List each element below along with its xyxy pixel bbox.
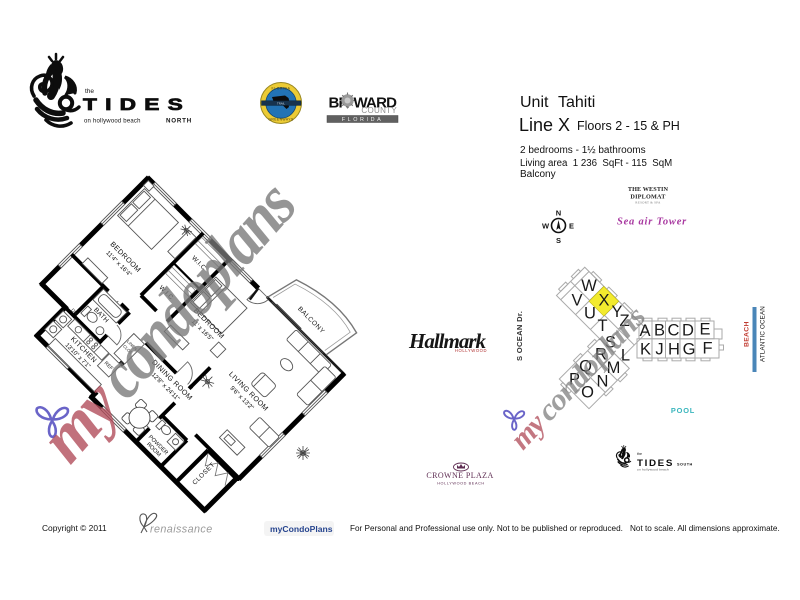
svg-text:S OCEAN Dr.: S OCEAN Dr. [515,311,524,361]
svg-text:NORTH: NORTH [166,118,192,125]
svg-text:DIPLOMAT: DIPLOMAT [630,194,666,201]
svg-text:FLORIDA: FLORIDA [272,87,291,91]
svg-text:the: the [85,88,94,95]
svg-text:POOL: POOL [671,406,695,415]
svg-text:on hollywood beach: on hollywood beach [84,119,141,125]
svg-text:Tahiti: Tahiti [558,94,595,111]
svg-text:B: B [654,322,665,340]
svg-text:GREENWAYS: GREENWAYS [268,118,294,122]
svg-text:For Personal and Professional: For Personal and Professional use only. … [350,524,623,533]
svg-text:the: the [637,452,642,456]
svg-text:E: E [569,222,574,231]
svg-text:Unit: Unit [520,94,549,111]
svg-text:X: X [598,292,609,310]
svg-text:U: U [584,305,596,323]
svg-text:SOUTH: SOUTH [677,463,693,467]
svg-text:Balcony: Balcony [520,169,556,180]
svg-text:J: J [655,341,663,359]
svg-text:COUNTY: COUNTY [361,106,397,115]
svg-text:Line X: Line X [519,115,570,135]
svg-text:H: H [668,341,680,359]
svg-text:Living area 1 236 SqFt - 115: Living area 1 236 SqFt - 115 SqM [520,158,672,169]
svg-text:N: N [556,209,561,218]
svg-text:Sea air Tower: Sea air Tower [617,217,687,228]
svg-text:myCondoPlans: myCondoPlans [270,524,333,534]
svg-text:S: S [556,236,561,245]
svg-text:2 bedrooms - 1½ bathrooms: 2 bedrooms - 1½ bathrooms [520,145,646,156]
svg-text:V: V [571,292,582,310]
svg-text:BEACH: BEACH [744,321,751,347]
svg-text:HOLLYWOOD BEACH: HOLLYWOOD BEACH [437,482,485,486]
svg-text:Not to scale. All dimensions: Not to scale. All dimensions approximate… [630,524,780,533]
svg-text:D: D [682,322,694,340]
svg-text:ATLANTIC OCEAN: ATLANTIC OCEAN [760,306,767,362]
svg-text:Copyright © 2011: Copyright © 2011 [42,523,107,533]
svg-text:C: C [668,322,680,340]
svg-text:CROWNE PLAZA: CROWNE PLAZA [426,471,493,480]
svg-text:K: K [640,341,651,359]
svg-text:renaissance: renaissance [150,524,213,536]
svg-text:on hollywood beach: on hollywood beach [637,468,669,472]
svg-text:W: W [581,277,597,295]
svg-text:G: G [683,341,696,359]
svg-text:W: W [542,222,550,231]
svg-text:F: F [702,340,712,358]
svg-text:TIDES: TIDES [83,96,191,114]
svg-text:HOLLYWOOD: HOLLYWOOD [455,348,487,353]
svg-text:RESORT & SPA: RESORT & SPA [635,201,661,205]
svg-text:THE WESTIN: THE WESTIN [628,186,669,193]
svg-text:Floors 2 - 15 & PH: Floors 2 - 15 & PH [577,119,680,133]
svg-text:FLORIDA: FLORIDA [342,117,384,123]
svg-text:TRAIL: TRAIL [277,102,285,106]
svg-text:E: E [699,321,710,339]
